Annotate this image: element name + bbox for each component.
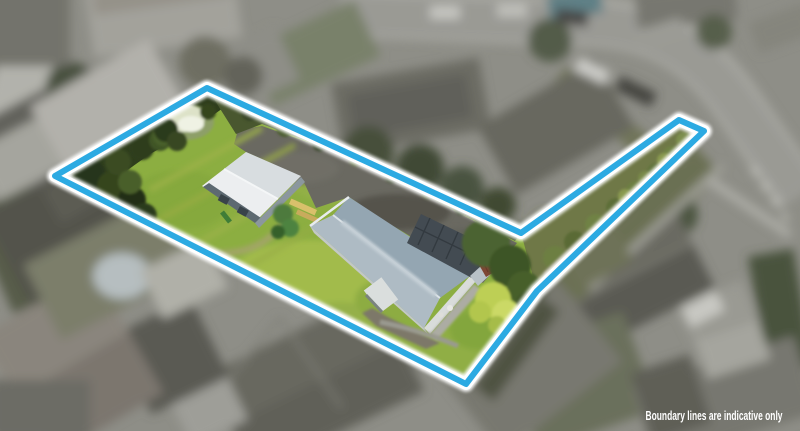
svg-text:Boundary lines are indicative: Boundary lines are indicative only (646, 409, 783, 423)
